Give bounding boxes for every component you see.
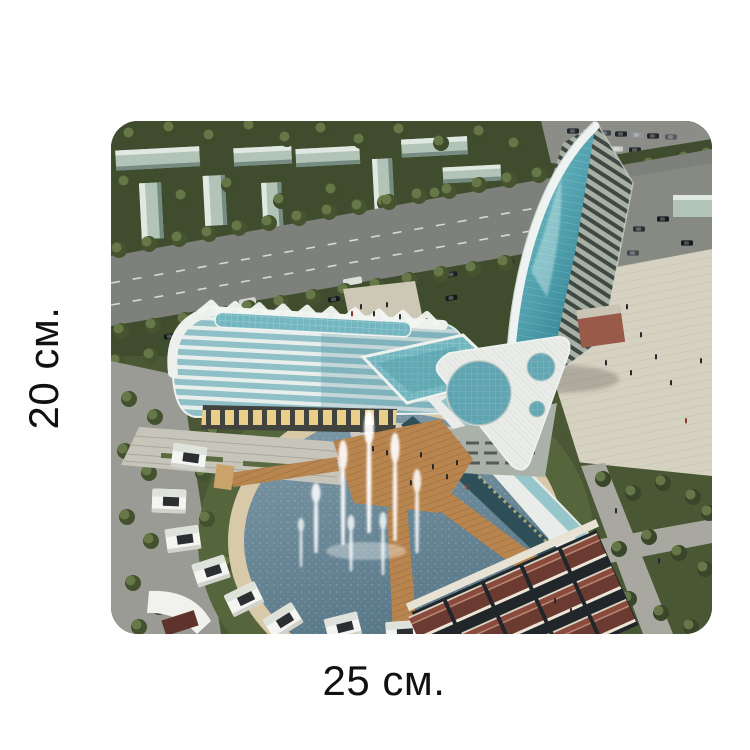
aerial-render-illustration <box>111 121 712 634</box>
tower-annex <box>576 304 625 348</box>
product-image <box>111 121 712 634</box>
width-dimension-label: 25 см. <box>323 660 446 702</box>
product-card: 20 см. <box>0 0 750 750</box>
height-dimension-label: 20 см. <box>23 307 65 430</box>
